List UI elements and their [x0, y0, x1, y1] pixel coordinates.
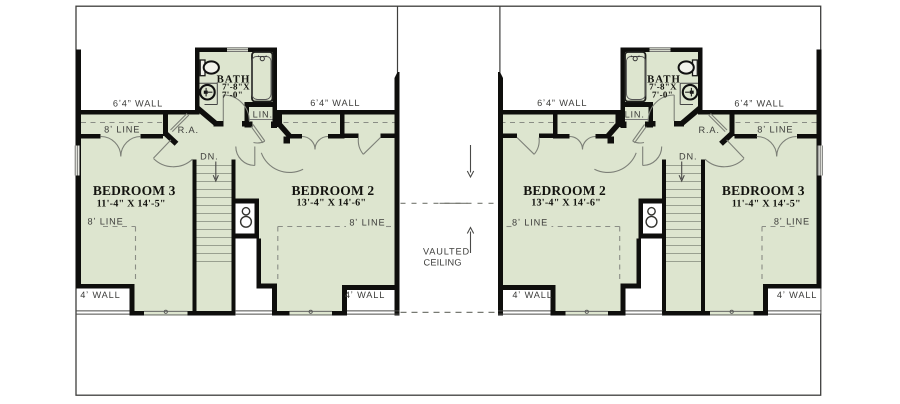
svg-text:6ʼ4” WALL: 6ʼ4” WALL: [537, 98, 587, 108]
svg-text:8ʼ LINE: 8ʼ LINE: [774, 217, 810, 227]
svg-text:11'-4" X 14'-5": 11'-4" X 14'-5": [732, 199, 801, 210]
svg-text:4ʼ WALL: 4ʼ WALL: [512, 290, 552, 300]
svg-text:R.A.: R.A.: [178, 125, 199, 135]
svg-text:8ʼ LINE: 8ʼ LINE: [88, 217, 124, 227]
svg-text:R.A.: R.A.: [699, 125, 720, 135]
svg-text:4ʼ WALL: 4ʼ WALL: [777, 290, 817, 300]
svg-text:13'-4" X 14'-6": 13'-4" X 14'-6": [531, 198, 601, 209]
svg-text:BEDROOM 2: BEDROOM 2: [292, 183, 375, 198]
svg-text:7'-0": 7'-0": [222, 90, 243, 100]
svg-text:VAULTED: VAULTED: [423, 247, 470, 257]
svg-text:8ʼ LINE: 8ʼ LINE: [349, 218, 385, 228]
svg-text:13'-4" X 14'-6": 13'-4" X 14'-6": [297, 198, 367, 209]
svg-text:6ʼ4” WALL: 6ʼ4” WALL: [734, 99, 784, 109]
svg-text:8ʼ LINE: 8ʼ LINE: [104, 125, 140, 135]
svg-text:CEILING: CEILING: [424, 258, 462, 268]
svg-text:LIN.: LIN.: [625, 110, 645, 120]
svg-text:11'-4" X 14'-5": 11'-4" X 14'-5": [97, 199, 166, 210]
svg-text:BEDROOM 3: BEDROOM 3: [722, 183, 805, 198]
svg-text:6ʼ4” WALL: 6ʼ4” WALL: [310, 98, 360, 108]
svg-text:DN.: DN.: [679, 152, 697, 162]
svg-text:4ʼ WALL: 4ʼ WALL: [80, 290, 120, 300]
svg-text:LIN.: LIN.: [253, 110, 273, 120]
svg-text:8ʼ LINE: 8ʼ LINE: [757, 125, 793, 135]
svg-text:7'-0": 7'-0": [652, 90, 673, 100]
svg-text:BEDROOM 3: BEDROOM 3: [93, 183, 176, 198]
svg-text:6ʼ4” WALL: 6ʼ4” WALL: [113, 99, 163, 109]
svg-text:4ʼ WALL: 4ʼ WALL: [345, 290, 385, 300]
svg-text:DN.: DN.: [200, 152, 218, 162]
svg-text:8ʼ LINE: 8ʼ LINE: [512, 218, 548, 228]
svg-text:BEDROOM 2: BEDROOM 2: [523, 183, 606, 198]
